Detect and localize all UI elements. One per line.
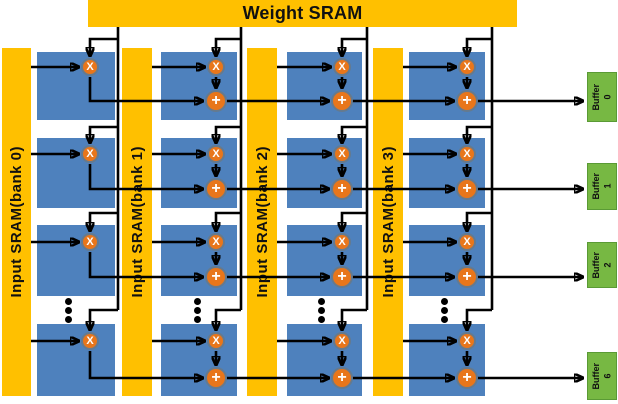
multiply-icon: X bbox=[458, 332, 476, 350]
multiply-icon: X bbox=[207, 145, 225, 163]
multiply-icon: X bbox=[333, 145, 351, 163]
add-icon: + bbox=[331, 90, 353, 112]
multiply-icon: X bbox=[333, 233, 351, 251]
ellipsis-icon bbox=[65, 298, 72, 323]
multiply-icon: X bbox=[458, 145, 476, 163]
add-icon: + bbox=[331, 266, 353, 288]
systolic-array-diagram: Weight SRAM Input SRAM(bank 0) Input SRA… bbox=[0, 0, 618, 404]
multiply-icon: X bbox=[207, 332, 225, 350]
multiply-icon: X bbox=[207, 58, 225, 76]
multiply-icon: X bbox=[207, 233, 225, 251]
input-arrows bbox=[31, 67, 456, 341]
multiply-icon: X bbox=[81, 233, 99, 251]
multiply-icon: X bbox=[333, 332, 351, 350]
multiply-icon: X bbox=[458, 58, 476, 76]
multiply-icon: X bbox=[81, 332, 99, 350]
add-icon: + bbox=[331, 367, 353, 389]
add-icon: + bbox=[331, 178, 353, 200]
ellipsis-icon bbox=[318, 298, 325, 323]
ellipsis-icon bbox=[194, 298, 201, 323]
add-icon: + bbox=[456, 266, 478, 288]
ellipsis-icon bbox=[441, 298, 448, 323]
add-icon: + bbox=[205, 90, 227, 112]
add-icon: + bbox=[205, 266, 227, 288]
add-icon: + bbox=[205, 178, 227, 200]
multiply-icon: X bbox=[333, 58, 351, 76]
multiply-icon: X bbox=[458, 233, 476, 251]
add-icon: + bbox=[456, 178, 478, 200]
add-icon: + bbox=[205, 367, 227, 389]
weight-tap-arrows bbox=[90, 39, 492, 330]
add-icon: + bbox=[456, 90, 478, 112]
multiply-icon: X bbox=[81, 58, 99, 76]
weight-bus-lines bbox=[118, 27, 492, 310]
add-icon: + bbox=[456, 367, 478, 389]
multiply-icon: X bbox=[81, 145, 99, 163]
